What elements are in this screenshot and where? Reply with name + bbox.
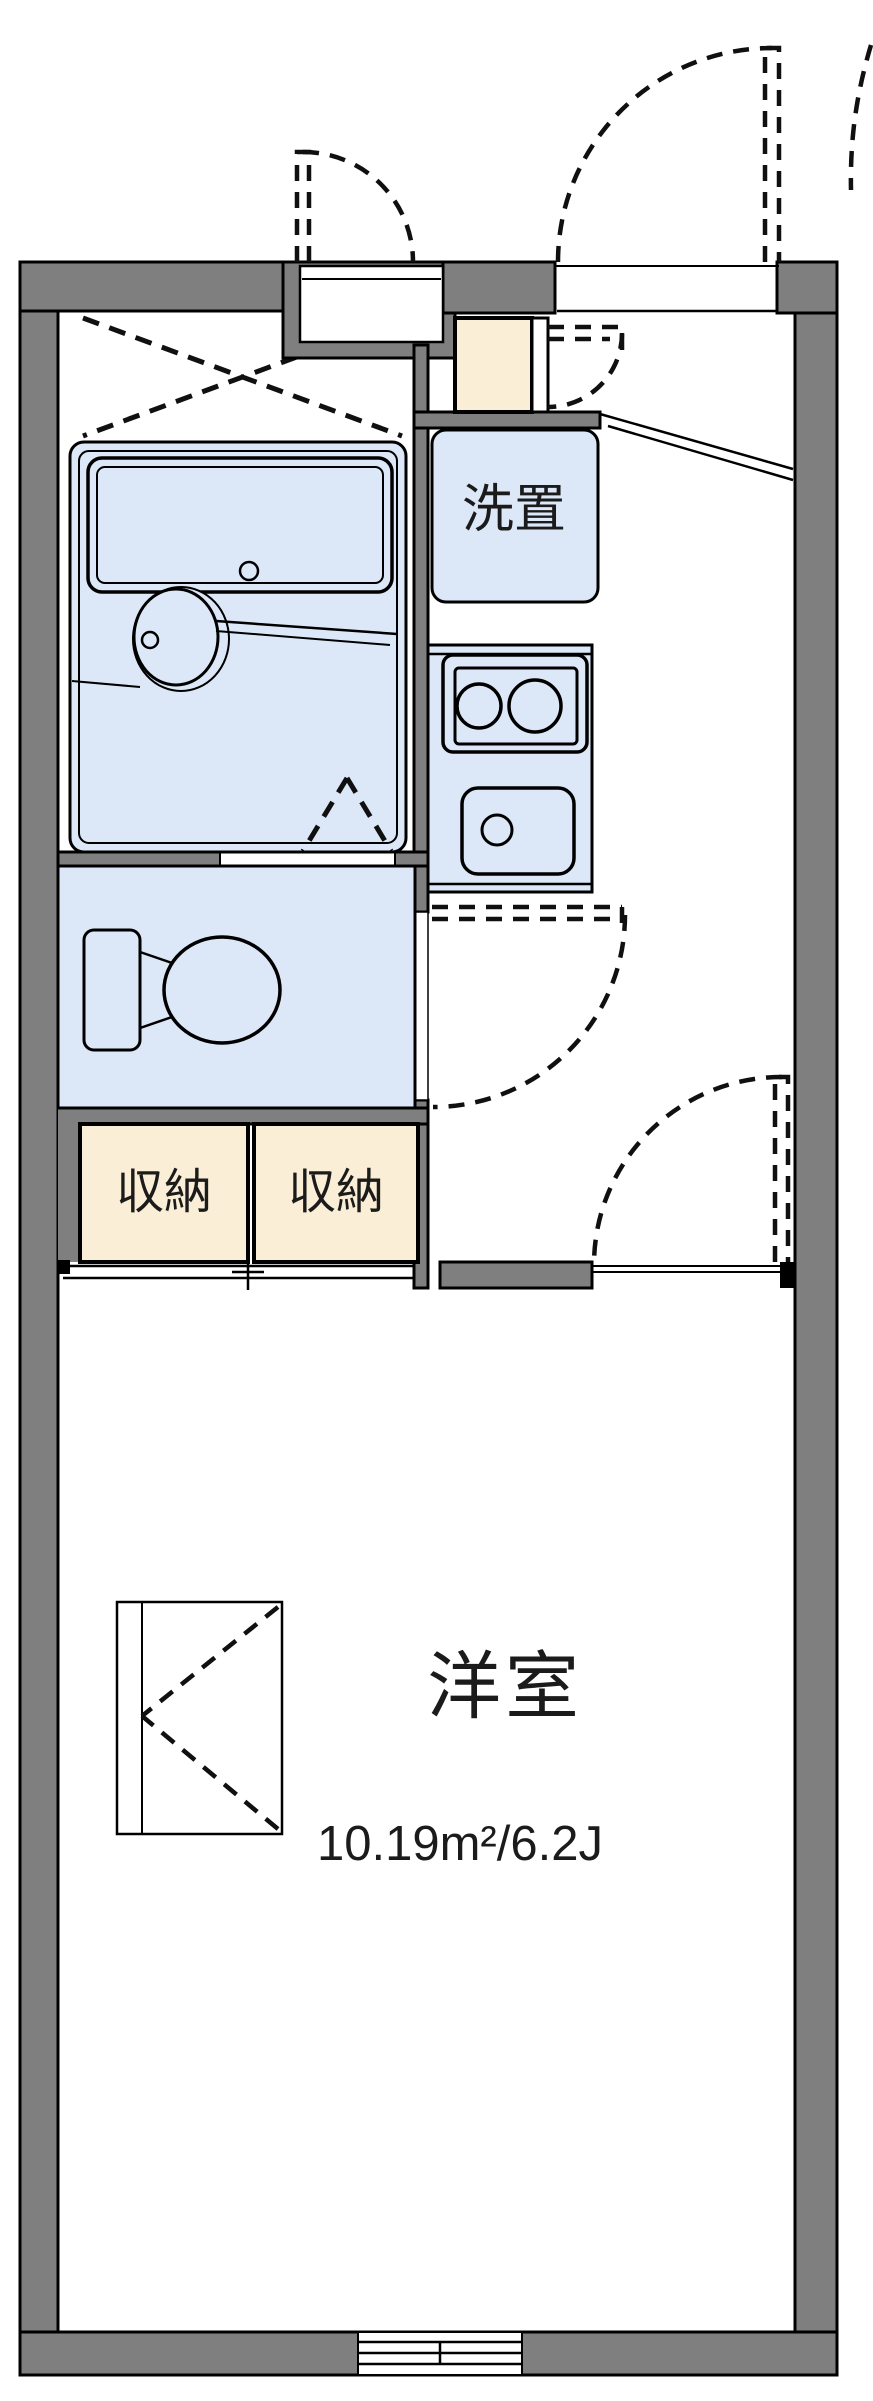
shoe-box-door-leaf <box>548 327 622 350</box>
kitchen <box>428 645 622 932</box>
wall-toilet-storage <box>58 1108 428 1124</box>
washbasin-faucet-icon <box>142 632 158 648</box>
room-area-label: 10.19m²/6.2J <box>317 1817 603 1871</box>
room-name-label: 洋室 <box>427 1645 583 1728</box>
toilet-room <box>58 866 415 1108</box>
western-room: 洋室 10.19m²/6.2J <box>117 1602 603 1871</box>
shoe-box <box>455 318 532 412</box>
bathroom <box>70 442 406 852</box>
storage-closets: 収納 収納 <box>63 1124 418 1290</box>
shoe-box-side <box>532 318 548 412</box>
genkan-step-edge <box>600 414 793 480</box>
wall-top-right-pier <box>777 262 837 313</box>
wall-stub-entrance <box>414 412 600 428</box>
top-left-door-leaf <box>297 152 309 262</box>
kitchen-sink-icon <box>462 788 574 874</box>
bathtub-drain-icon <box>240 562 258 580</box>
top-door-alcove <box>300 266 443 342</box>
entrance-door-leaf <box>765 48 779 262</box>
stove-burner-right-icon <box>509 680 561 732</box>
wall-storage-side <box>58 1108 80 1262</box>
neighbor-door-arc <box>851 45 871 190</box>
room-door-arc <box>594 1077 782 1265</box>
wall-top-left <box>20 262 300 311</box>
wall-top-mid <box>443 262 555 313</box>
storage-right-label: 収納 <box>288 1166 384 1219</box>
shoe-box-door-arc <box>548 333 622 407</box>
toilet-tank-icon <box>84 930 140 1050</box>
entrance-door-arc <box>558 48 772 262</box>
wall-hall-room <box>440 1262 592 1288</box>
top-left-door-arc <box>303 152 413 262</box>
floor-plan: 収納 収納 洗置 <box>0 0 873 2401</box>
toilet-bowl-icon <box>164 937 280 1043</box>
wall-right <box>795 262 837 2375</box>
wall-center-upper <box>414 345 428 912</box>
toilet-door-arc <box>433 915 625 1107</box>
stove-burner-left-icon <box>457 684 501 728</box>
washer-space: 洗置 <box>432 430 598 602</box>
sink-drain-icon <box>482 815 512 845</box>
room-door-leaf <box>775 1077 788 1262</box>
room-doorway-threshold <box>592 1266 783 1272</box>
storage-left-label: 収納 <box>116 1166 212 1219</box>
floor-plan-canvas: 収納 収納 洗置 <box>0 0 873 2401</box>
washer-label: 洗置 <box>462 481 566 539</box>
kitchen-area-dashed-boundary <box>432 907 622 932</box>
bath-door-opening <box>220 852 395 866</box>
wall-left <box>20 262 58 2375</box>
